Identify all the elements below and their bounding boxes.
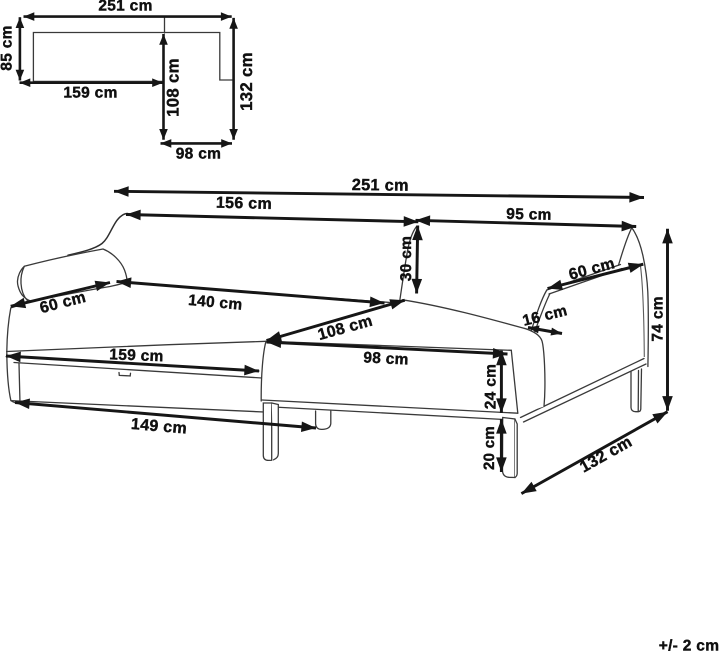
- svg-text:20 cm: 20 cm: [481, 426, 498, 470]
- svg-text:251 cm: 251 cm: [98, 0, 152, 15]
- svg-text:98 cm: 98 cm: [176, 146, 221, 163]
- svg-text:251 cm: 251 cm: [352, 176, 409, 195]
- svg-text:132 cm: 132 cm: [237, 52, 256, 111]
- svg-text:95 cm: 95 cm: [506, 206, 552, 224]
- svg-text:159 cm: 159 cm: [63, 84, 117, 101]
- svg-text:159 cm: 159 cm: [109, 346, 164, 365]
- svg-text:85 cm: 85 cm: [0, 25, 15, 70]
- svg-text:108 cm: 108 cm: [163, 58, 182, 117]
- svg-text:30 cm: 30 cm: [398, 236, 415, 281]
- svg-text:156 cm: 156 cm: [216, 195, 272, 213]
- svg-text:24 cm: 24 cm: [482, 364, 499, 409]
- svg-text:+/- 2 cm: +/- 2 cm: [659, 637, 720, 652]
- svg-text:98 cm: 98 cm: [363, 349, 409, 368]
- svg-text:74 cm: 74 cm: [650, 296, 667, 341]
